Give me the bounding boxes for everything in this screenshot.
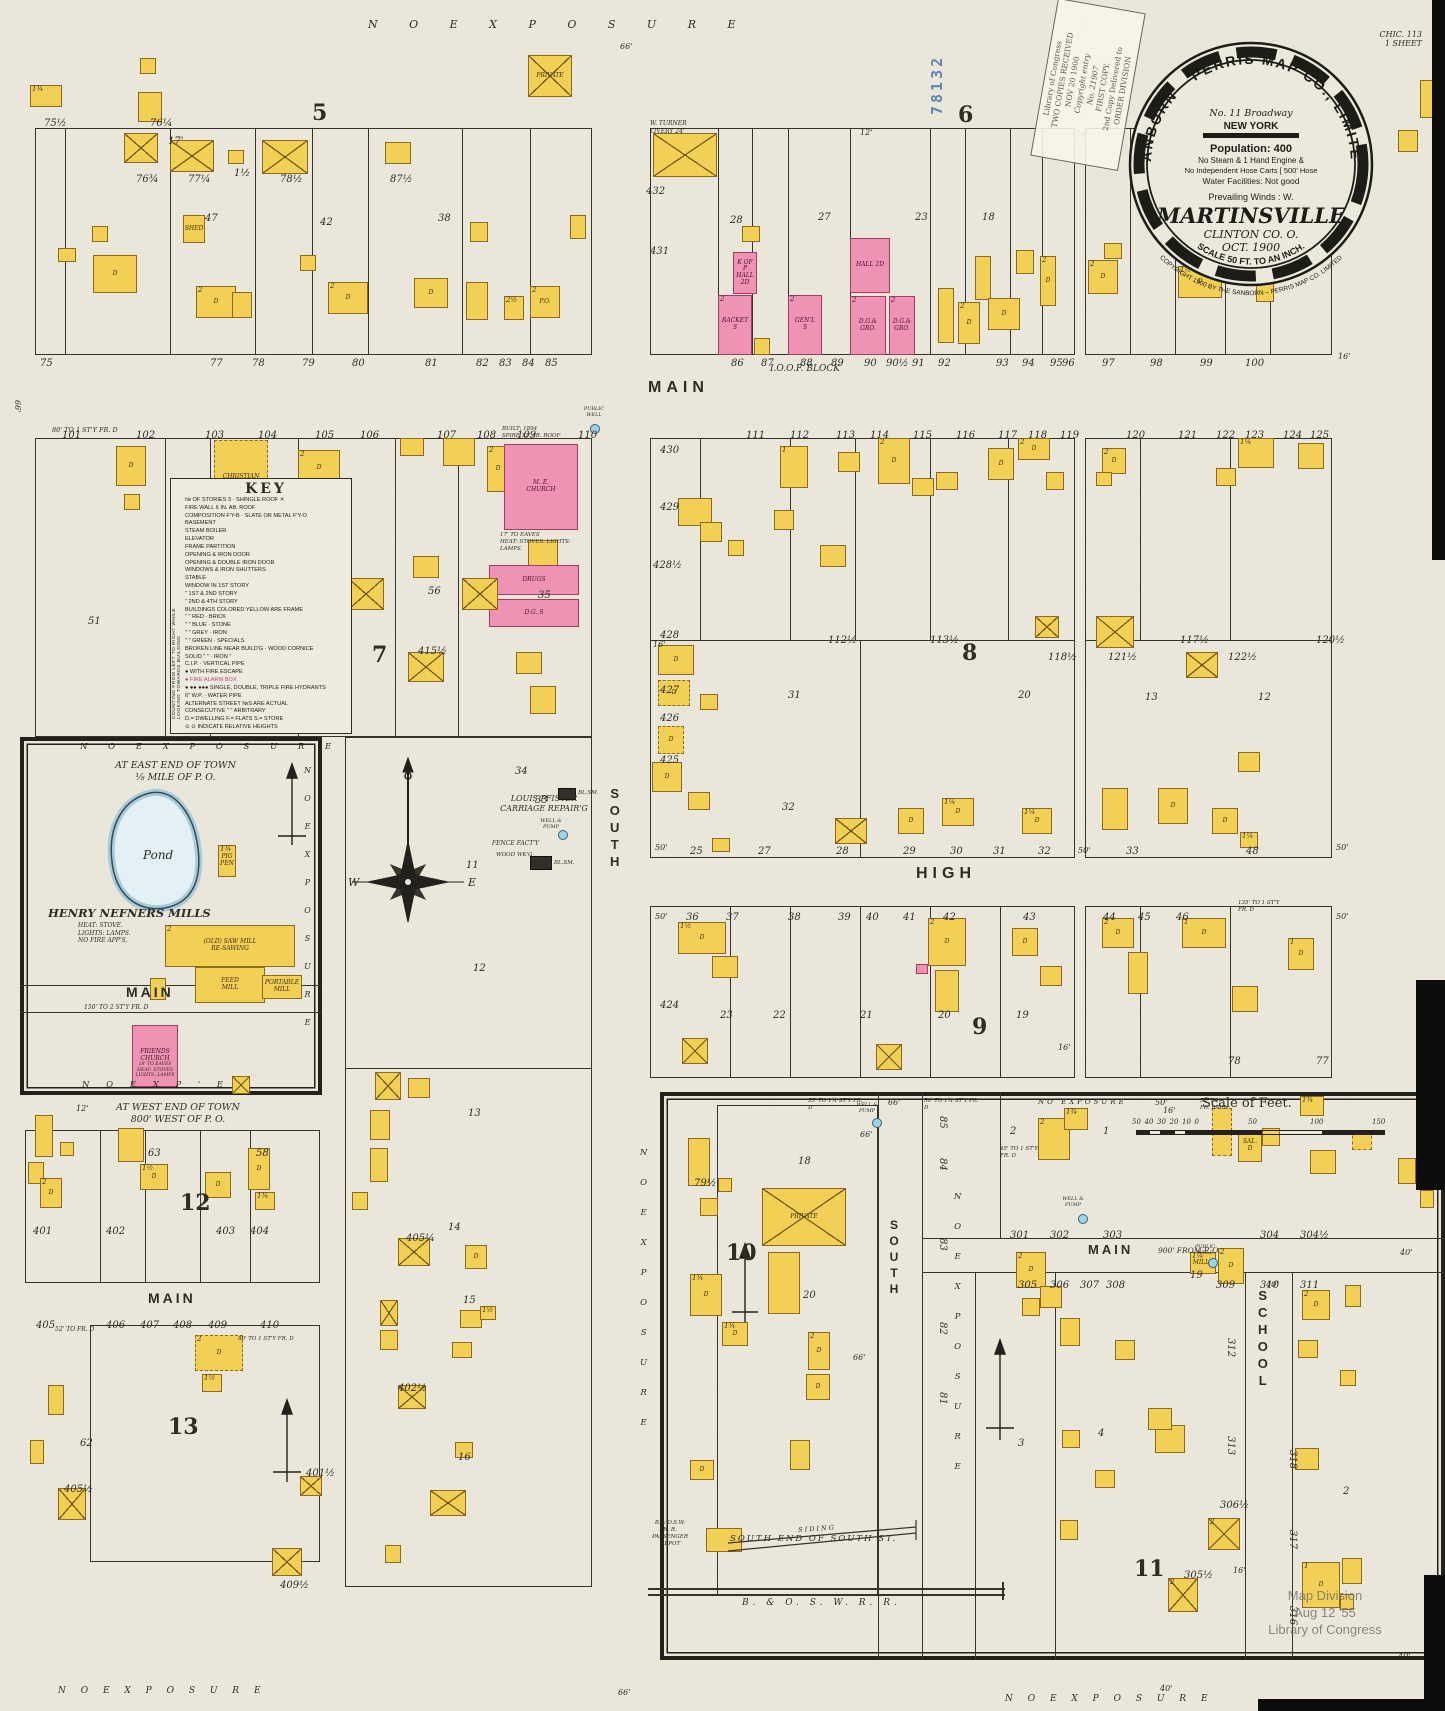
lot-number: 37: [726, 912, 739, 923]
lot-line: [1000, 906, 1001, 1078]
lot-number: 103: [205, 430, 224, 441]
lot-number: 122: [1216, 430, 1235, 441]
building: M. E. CHURCH: [504, 444, 578, 530]
street-name-south: SOUTH: [606, 786, 622, 871]
map-label: 45' TO 1 ST'Y FR. D: [1000, 1146, 1058, 1160]
lot-line: [648, 1594, 1005, 1596]
building: [835, 818, 867, 844]
key-item: C.I.P. · VERTICAL PIPE: [185, 661, 347, 669]
lot-line: [975, 1272, 976, 1660]
building-stories: 1¾: [724, 1322, 735, 1330]
key-item: ALTERNATE STREET №S ARE ACTUAL: [185, 701, 347, 709]
street-name-main: MAIN: [1088, 1242, 1133, 1258]
map-label: 52' TO FR. D: [55, 1326, 94, 1334]
lot-number: 87½: [390, 174, 412, 185]
building: 1¾: [1064, 1108, 1088, 1130]
block-number: 7: [372, 642, 387, 668]
scale-segment: [1136, 1130, 1149, 1135]
key-item: FIRE WALL 6 IN. AB. ROOF: [185, 505, 347, 513]
building: [1062, 1430, 1080, 1448]
building: [380, 1330, 398, 1350]
building: D2: [808, 1332, 830, 1370]
building: 1½: [480, 1306, 496, 1320]
lot-number: 112: [790, 430, 809, 441]
lot-number: 23: [915, 212, 928, 223]
scale-segment: [1199, 1130, 1261, 1135]
building: [1232, 986, 1258, 1012]
building: [58, 248, 76, 262]
lot-number: 28: [836, 846, 849, 857]
building: 2½: [504, 296, 524, 320]
key-item: ⊙ ⊙ INDICATE RELATIVE HEIGHTS: [185, 724, 347, 732]
building-stories: 2: [720, 295, 724, 303]
stamp-town-name: MARTINSVILLE: [1156, 203, 1346, 228]
scale-tick: 20: [1170, 1118, 1179, 1126]
building: D1¼: [1022, 808, 1052, 834]
lot-number: 98: [1150, 358, 1163, 369]
building: [1398, 1158, 1416, 1184]
map-label: N O E X P O S U R E: [58, 1686, 267, 1697]
building: [300, 1476, 322, 1496]
lot-number: 99: [1200, 358, 1213, 369]
scan-edge: [1432, 0, 1445, 560]
building: PIG PEN1¾: [218, 845, 236, 877]
key-item: FRAME PARTITION: [185, 544, 347, 552]
building-label: D: [989, 449, 1013, 479]
lot-line: [462, 128, 463, 355]
building: [1148, 1408, 1172, 1430]
building: [530, 856, 552, 870]
building: D2: [195, 1335, 243, 1371]
lot-number: 409½: [280, 1580, 309, 1591]
block-number: 11: [1134, 1556, 1165, 1582]
scale-bar-label: Scale of Feet.: [1202, 1096, 1292, 1111]
lot-number: 312: [1225, 1338, 1236, 1357]
map-label: N O E X P O S U R E: [638, 1148, 649, 1433]
scale-segment: [1261, 1130, 1323, 1135]
building-label: D: [1183, 919, 1225, 947]
map-label: 18' TO EAVES HEAT: STOVES LIGHTS: LAMPS: [126, 1062, 184, 1079]
lot-number: 85: [545, 358, 558, 369]
building: [742, 226, 760, 242]
building-label: M. E. CHURCH: [505, 445, 577, 529]
building: [124, 133, 158, 163]
lot-number: 305½: [1184, 1570, 1213, 1581]
key-item: " " BLUE · STONE: [185, 622, 347, 630]
lot-number: 425: [660, 755, 679, 766]
building: [700, 1198, 718, 1216]
lot-line: [1055, 1272, 1056, 1660]
building-label: D: [197, 287, 235, 317]
scan-edge: [1424, 1575, 1445, 1711]
building-stories: 2½: [506, 296, 517, 304]
lot-number: 47: [205, 213, 218, 224]
map-label: NO EXPOSURE: [1038, 1098, 1127, 1107]
lot-number: 407: [140, 1320, 159, 1331]
building: RACKET S2: [718, 295, 752, 355]
street-name-school: SCHOOL: [1254, 1288, 1270, 1390]
lot-number: 424: [660, 1000, 679, 1011]
lot-number: 308: [1106, 1280, 1125, 1291]
building-label: PRIVATE: [763, 1189, 845, 1245]
building: [430, 1490, 466, 1516]
map-division-line: Map Division: [1230, 1588, 1420, 1605]
building: [413, 556, 439, 578]
lot-number: 313: [1225, 1436, 1236, 1455]
lot-number: 81: [425, 358, 438, 369]
lot-line: [1230, 906, 1231, 1078]
building-stories: 2: [1042, 256, 1046, 264]
building: D2: [1088, 260, 1118, 294]
building: D2: [328, 282, 368, 314]
lot-number: 42: [320, 217, 333, 228]
building-stories: 1¼: [944, 798, 955, 806]
well-marker-icon: [558, 830, 568, 840]
building: [272, 1548, 302, 1576]
lot-number: 20: [938, 1010, 951, 1021]
lot-number: 32: [1038, 846, 1051, 857]
stamp-population: Population: 400: [1210, 143, 1292, 155]
lot-number: 15: [463, 1295, 476, 1306]
scale-segment: [1323, 1130, 1385, 1135]
lot-number: 78: [1228, 1056, 1241, 1067]
lot-number: 107: [437, 430, 456, 441]
building: GEN'L S2: [788, 295, 822, 355]
building: [1096, 616, 1134, 648]
building-stories: 1½: [204, 1374, 215, 1382]
scale-tick: 10: [1182, 1118, 1191, 1126]
key-item: № OF STORIES 3 · SHINGLE ROOF ✕: [185, 497, 347, 505]
block-number: 6: [958, 102, 973, 128]
lot-number: 13: [468, 1108, 481, 1119]
building-stories: 1¾: [220, 845, 231, 853]
lot-number: 117½: [1180, 635, 1209, 646]
building: [728, 540, 744, 556]
lot-number: 34: [515, 766, 528, 777]
building: [1060, 1318, 1080, 1346]
building: 1½: [202, 1374, 222, 1392]
building: K OF P HALL 2D: [733, 252, 757, 294]
building: [232, 292, 252, 318]
map-label: N O E X P O S U R E: [302, 766, 312, 1032]
building: [1186, 652, 1218, 678]
lot-line: [20, 1012, 322, 1013]
block-outline: [717, 1105, 878, 1595]
building: [820, 545, 846, 567]
map-label: FENCE FACT'Y: [492, 840, 539, 848]
lot-number: 83: [499, 358, 512, 369]
map-label: AT WEST END OF TOWN 800' WEST OF P. O.: [88, 1102, 268, 1126]
building-stories: 1¾: [32, 85, 43, 93]
map-label: 40': [1398, 1652, 1410, 1662]
lot-number: 25: [690, 846, 703, 857]
lot-line: [145, 1130, 146, 1283]
building-label: SHED: [184, 216, 204, 242]
building: [1398, 130, 1418, 152]
building-label: D: [653, 763, 681, 791]
lot-number: 42: [943, 912, 956, 923]
lot-number: 77: [1316, 1056, 1329, 1067]
building-stories: 1½: [142, 1164, 153, 1172]
building: D: [1212, 808, 1238, 834]
lot-line: [255, 128, 256, 355]
street-name-main: MAIN: [648, 378, 709, 398]
building-label: PRIVATE: [529, 56, 571, 96]
building: D2: [196, 286, 236, 318]
lot-number: 36: [686, 912, 699, 923]
building: [712, 838, 730, 852]
building: [1216, 468, 1236, 486]
map-label: N O E X P ' E: [82, 1080, 230, 1091]
lot-number: 114: [870, 430, 889, 441]
map-label: WELL & PUMP: [852, 1102, 882, 1115]
building: D2: [958, 302, 980, 344]
building: D: [988, 448, 1014, 480]
lot-number: 33: [1126, 846, 1139, 857]
building: [1096, 472, 1112, 486]
block-number: 5: [312, 100, 327, 126]
lot-line: [922, 1092, 923, 1660]
lot-number: 46: [1176, 912, 1189, 923]
key-item: ● FIRE ALARM BOX: [185, 677, 347, 685]
building-stories: 1½: [482, 1306, 493, 1314]
map-label: 12': [860, 128, 872, 138]
lot-line: [530, 128, 531, 355]
lot-number: 307: [1080, 1280, 1099, 1291]
lot-number: 62: [80, 1438, 93, 1449]
building: D: [465, 1245, 487, 1269]
building: [228, 150, 244, 164]
map-label: N O E X P O S U R E: [368, 18, 750, 32]
lot-number: 96: [1062, 358, 1075, 369]
map-label: LOUIS PFISTER CARRIAGE REPAIR'G: [488, 794, 600, 814]
lot-number: 44: [1103, 912, 1116, 923]
building: D2: [1102, 448, 1126, 474]
building: D1¼: [942, 798, 974, 826]
lot-number: 18: [798, 1156, 811, 1167]
lot-number: 402½: [398, 1383, 427, 1394]
map-label: SOUTH END OF SOUTH ST.: [730, 1534, 897, 1545]
building-stories: 2: [532, 286, 536, 294]
map-division-line: Library of Congress: [1230, 1622, 1420, 1639]
lot-number: 401½: [306, 1468, 335, 1479]
building: [460, 1310, 482, 1328]
building-label: D: [691, 1461, 713, 1479]
lot-number: 108: [477, 430, 496, 441]
scale-tick: 30: [1157, 1118, 1166, 1126]
building-stories: 1¾: [1066, 1108, 1077, 1116]
lot-number: 38: [788, 912, 801, 923]
building: [1298, 1340, 1318, 1358]
lot-number: 428½: [653, 560, 682, 571]
map-label: 150' TO 2 ST'Y FR. D: [84, 1004, 149, 1012]
lot-number: 29: [903, 846, 916, 857]
building: [470, 222, 488, 242]
building: [1115, 1340, 1135, 1360]
building: D1½: [678, 922, 726, 954]
building-stories: 1: [1304, 1562, 1308, 1570]
building: [48, 1385, 64, 1415]
lot-number: 79: [302, 358, 315, 369]
building: [348, 578, 384, 610]
building-stories: 1¾: [692, 1274, 703, 1282]
map-label: W. TURNER LIVERY 24': [650, 120, 720, 135]
key-item: 6" W.P. · WATER PIPE: [185, 693, 347, 701]
building: D: [898, 808, 924, 834]
lot-number: 402: [106, 1226, 125, 1237]
key-item: WINDOW IN 1ST STORY: [185, 583, 347, 591]
building: [712, 956, 738, 978]
lot-number: 317: [1287, 1530, 1298, 1549]
lot-line: [878, 1092, 879, 1660]
building: [653, 133, 717, 177]
building: SHED: [183, 215, 205, 243]
building: PRIVATE: [528, 55, 572, 97]
lot-number: 115: [913, 430, 932, 441]
building: [1128, 952, 1148, 994]
lot-number: 105: [315, 430, 334, 441]
lot-number: 11: [466, 860, 479, 871]
map-label: 16': [1233, 1566, 1245, 1576]
lot-number: 309: [1216, 1280, 1235, 1291]
map-label: 80' TO 1 ST'Y FR. D: [238, 1336, 298, 1343]
building-label: (OLD) SAW MILL RE-SAWING: [166, 926, 294, 966]
map-label: 50': [655, 912, 667, 922]
building: 1¾: [255, 1192, 275, 1210]
building-stories: 2: [1020, 438, 1024, 446]
building: D1: [1288, 938, 1314, 970]
map-label: W: [348, 876, 359, 890]
lot-number: 38: [438, 213, 451, 224]
building-label: D: [807, 1375, 829, 1399]
lot-number: 90½: [886, 358, 908, 369]
map-label: 16': [1058, 1043, 1070, 1053]
lot-number: 306½: [1220, 1500, 1249, 1511]
building-label: D: [659, 727, 683, 753]
building: [30, 1440, 44, 1464]
scale-segment: [1186, 1130, 1199, 1135]
lot-number: 28: [730, 215, 743, 226]
key-legend: KEY № OF STORIES 3 · SHINGLE ROOF ✕FIRE …: [170, 478, 352, 734]
lot-line: [930, 438, 931, 640]
building: PRIVATE: [762, 1188, 846, 1246]
building-label: PORTABLE MILL: [263, 976, 301, 998]
building-stories: 2: [1170, 1578, 1174, 1586]
building: [370, 1110, 390, 1140]
street-name-high: HIGH: [916, 864, 976, 884]
lot-number: 79½: [694, 1178, 716, 1189]
building: [1295, 1448, 1319, 1470]
lot-number: 21: [860, 1010, 873, 1021]
stamp-address: No. 11 Broadway: [1208, 108, 1293, 119]
building: [92, 226, 108, 242]
building: [452, 1342, 472, 1358]
key-item: OPENING & DOUBLE IRON DOOR: [185, 560, 347, 568]
building-stories: 2: [489, 446, 493, 454]
key-item: " " GREEN · SPECIALS: [185, 638, 347, 646]
lot-line: [930, 128, 931, 355]
lot-line: [922, 1272, 1445, 1273]
lot-number: 429: [660, 502, 679, 513]
building: [912, 478, 934, 496]
lot-number: 16: [458, 1452, 471, 1463]
building: [938, 288, 954, 343]
lot-number: 20: [1018, 690, 1031, 701]
building: [352, 1192, 368, 1210]
building: 1¼: [1238, 438, 1274, 468]
lot-number: 75½: [44, 118, 66, 129]
title-stamp: SANBORN – PERRIS MAP CO., LIMITED SCALE …: [1120, 30, 1382, 298]
building: [1060, 1520, 1078, 1540]
building: [768, 1252, 800, 1314]
building: [1340, 1370, 1356, 1386]
building-stories: 2: [330, 282, 334, 290]
building: [1046, 472, 1064, 490]
lot-number: 48: [1246, 846, 1259, 857]
scale-bar: Scale of Feet. 5040302010050100150: [1128, 1096, 1408, 1144]
map-label: Pond: [143, 848, 173, 863]
lot-number: 318: [1287, 1450, 1298, 1469]
building-label: D.G. S: [490, 600, 578, 626]
building-stories: 1: [1290, 938, 1294, 946]
building-stories: 2: [891, 296, 895, 304]
map-canvas: SANBORN – PERRIS MAP CO., LIMITED SCALE …: [0, 0, 1445, 1711]
lot-number: 56: [428, 586, 441, 597]
lot-number: 426: [660, 713, 679, 724]
building: 1: [780, 446, 808, 488]
building: [1035, 616, 1059, 638]
serial-number: 78132: [928, 55, 946, 115]
lot-number: 19: [1190, 1270, 1203, 1281]
building: [916, 964, 928, 974]
lot-line: [790, 906, 791, 1078]
building: [688, 792, 710, 810]
building: [935, 970, 959, 1012]
lot-number: 20: [803, 1290, 816, 1301]
building-label: D: [1041, 257, 1055, 305]
block-number: 10: [726, 1240, 757, 1266]
building: [232, 1076, 250, 1094]
key-item: WINDOWS & IRON SHUTTERS: [185, 567, 347, 575]
building: [1342, 1558, 1362, 1584]
lot-line: [165, 438, 166, 737]
lot-number: 41: [903, 912, 916, 923]
map-label: 80' TO 1 ST'Y FR. D: [52, 426, 118, 434]
lot-number: 76¼: [150, 118, 172, 129]
key-item: COMPOSITION F'Y-B · SLATE OR METAL F'Y-O: [185, 513, 347, 521]
lot-number: 43: [1023, 912, 1036, 923]
lot-number: 304½: [1300, 1230, 1329, 1241]
building: [300, 255, 316, 271]
map-label: N O E X P O S U R E: [80, 742, 340, 753]
stamp-water: Water Facilities: Not good: [1203, 176, 1300, 186]
map-label: PUBLIC WELL: [576, 406, 612, 419]
building: [1095, 1470, 1115, 1488]
street-name-main: MAIN: [148, 1290, 196, 1308]
building-label: D: [659, 646, 693, 674]
lot-number: 22: [773, 1010, 786, 1021]
building: 2: [1208, 1518, 1240, 1550]
building-stories: 2: [198, 286, 202, 294]
lot-number: 120: [1126, 430, 1145, 441]
building: [876, 1044, 902, 1070]
lot-number: 405: [36, 1320, 55, 1331]
lot-number: 304: [1260, 1230, 1279, 1241]
map-division-line: Aug 12 '55: [1230, 1605, 1420, 1622]
lot-number: 27: [818, 212, 831, 223]
map-label: N O E X P O S U R E: [1005, 1694, 1214, 1705]
stamp-hose: No Independent Hose Carts [ 500' Hose: [1185, 166, 1318, 175]
